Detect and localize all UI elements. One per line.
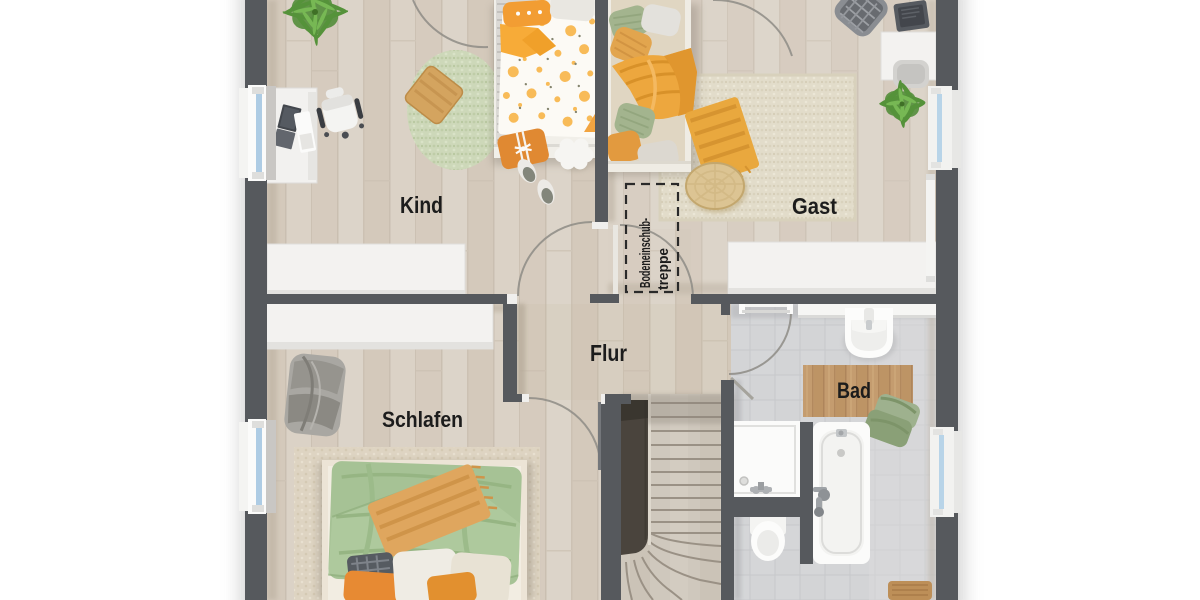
svg-text:Bodeneinschub-: Bodeneinschub- [638,218,654,288]
svg-text:Bad: Bad [837,378,871,403]
svg-text:Gast: Gast [792,193,837,219]
svg-text:Flur: Flur [590,340,627,366]
svg-text:treppe: treppe [656,248,672,290]
svg-text:Schlafen: Schlafen [382,407,463,432]
svg-text:Kind: Kind [400,192,443,218]
